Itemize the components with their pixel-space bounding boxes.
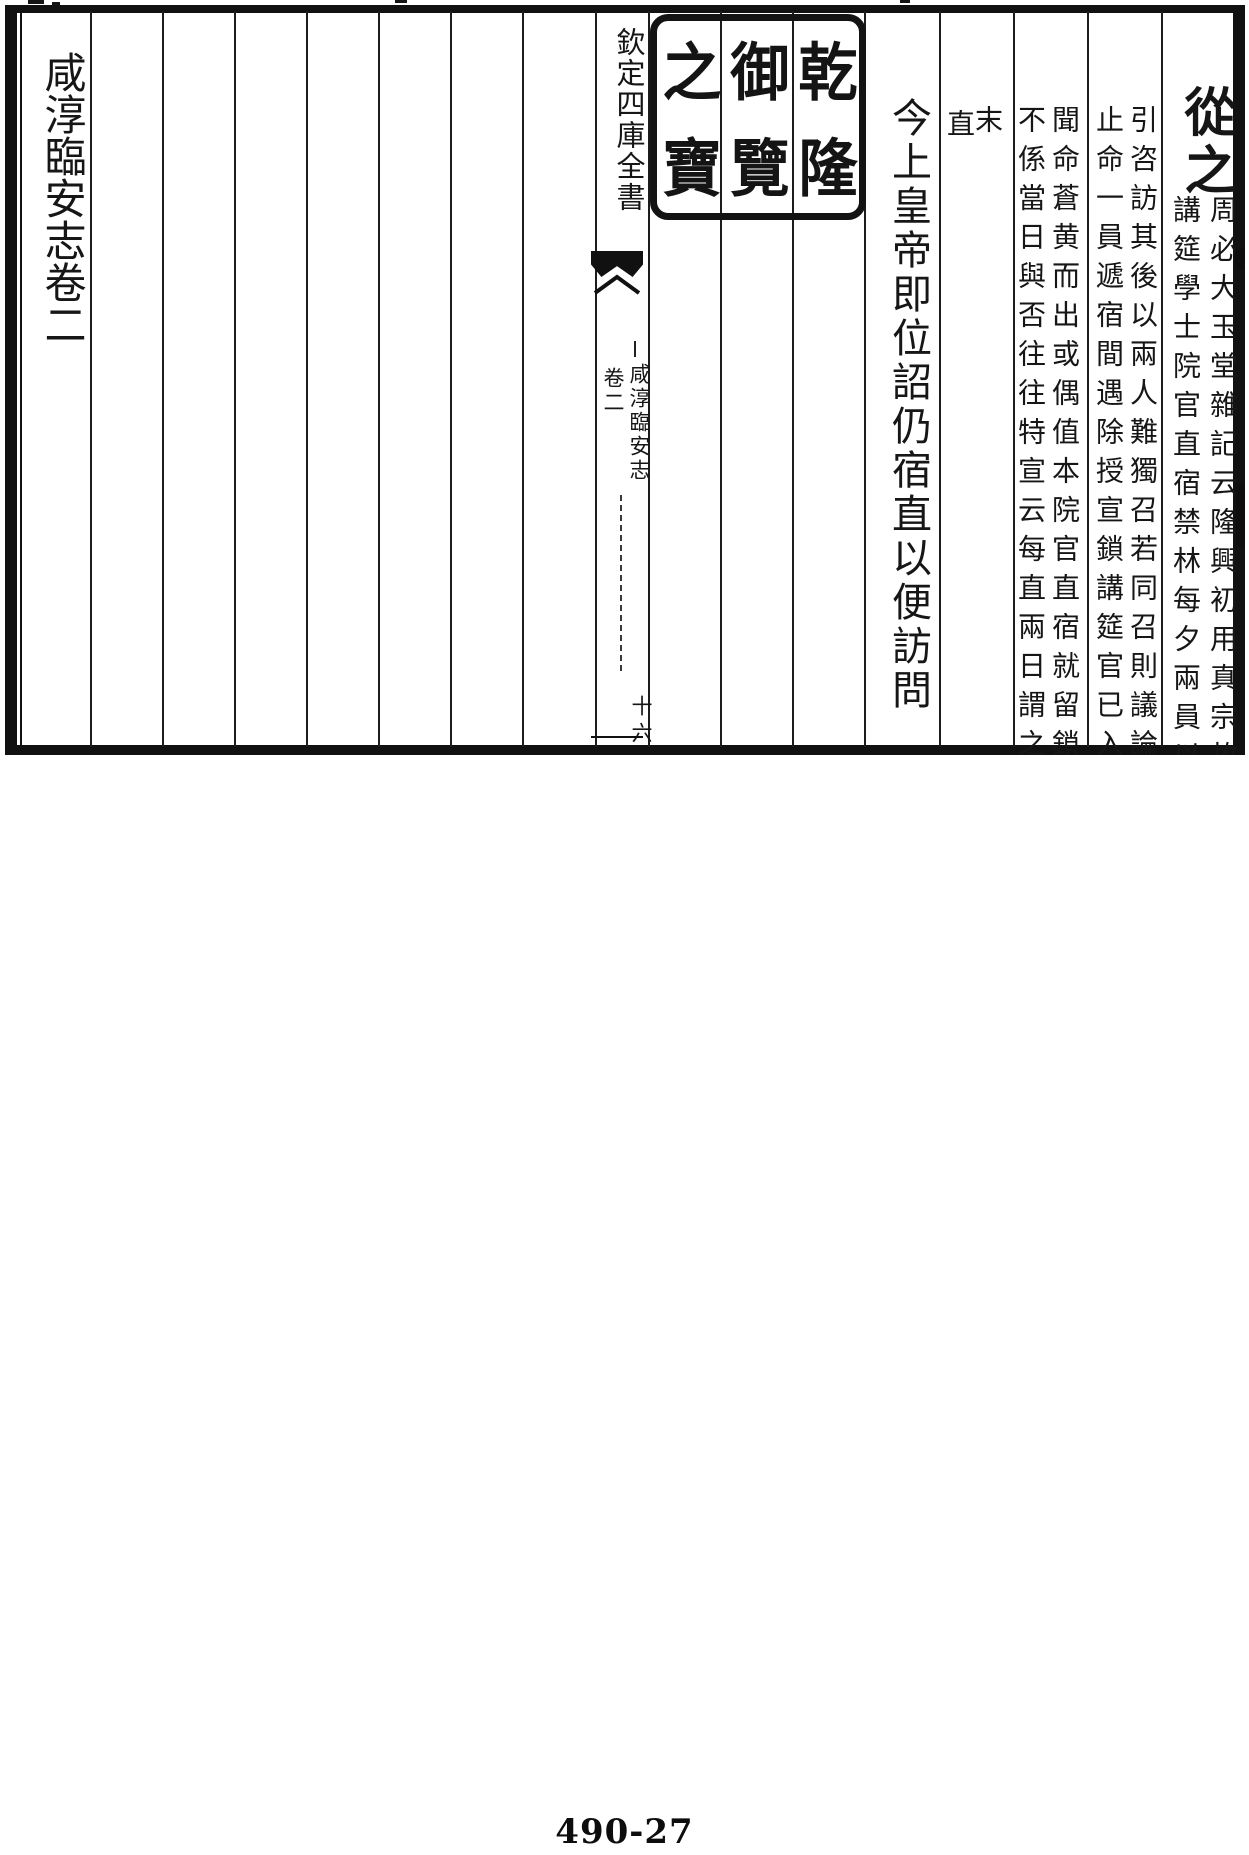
seal-char: 之 <box>660 23 723 122</box>
frame-left-inner-line <box>20 11 22 747</box>
plate-number: 490-27 <box>0 1812 1249 1852</box>
volume-title: 咸淳臨安志卷二 <box>35 51 83 345</box>
qianlong-imperial-seal: 乾 隆 御 覽 之 寶 <box>650 14 866 220</box>
main-text-proclamation: 今上皇帝即位詔仍宿直以便訪問 <box>874 97 928 713</box>
spine-chapter: 卷二 <box>599 367 623 415</box>
column-rule-line <box>450 11 452 747</box>
column-rule-line <box>378 11 380 747</box>
column-rule-line <box>522 11 524 747</box>
ink-mark <box>28 0 44 4</box>
seal-char: 御 <box>728 23 791 122</box>
fishtail-chevron <box>591 273 643 297</box>
frame-left-border <box>5 5 17 755</box>
annotation-col1-left: 講筵學士院官直宿禁林每夕兩員以 <box>1165 195 1199 755</box>
seal-char: 寶 <box>660 119 723 218</box>
book-page-frame: 咸淳臨安志卷二 欽定四庫全書 咸淳臨安志 卷二 十六 乾 隆 御 覽 之 寶 今… <box>5 5 1245 755</box>
spine-header-siku-quanshu: 欽定四庫全書 <box>595 27 643 213</box>
ink-mark <box>900 0 910 3</box>
spine-folio-number: 十六 <box>625 695 651 749</box>
column-rule-line <box>1161 11 1163 747</box>
annotation-col2-left: 止命一員遞宿間遇除授宣鎖講筵官已入 <box>1088 105 1122 755</box>
column-rule-line <box>306 11 308 747</box>
scanned-book-page: 咸淳臨安志卷二 欽定四庫全書 咸淳臨安志 卷二 十六 乾 隆 御 覽 之 寶 今… <box>0 0 1249 1855</box>
column-rule-line <box>162 11 164 747</box>
ink-blob <box>1235 248 1245 270</box>
spine-tick <box>634 341 636 357</box>
ink-mark <box>395 0 407 3</box>
annotation-col3-left: 不係當日與否往往特宣云每直兩日謂之 <box>1010 105 1044 755</box>
spine-center-fold-line <box>620 495 622 671</box>
column-rule-line <box>90 11 92 747</box>
ink-blob <box>1236 485 1245 547</box>
main-text-verdict: 從之 <box>1173 85 1231 201</box>
seal-char: 覽 <box>728 119 791 218</box>
frame-top-border <box>5 5 1245 13</box>
annotation-col3-right: 聞命蒼黄而出或偶值本院官直宿就留鎖 <box>1044 105 1078 755</box>
seal-char: 隆 <box>796 119 859 218</box>
annotation-col4-left: 直 <box>939 109 973 148</box>
annotation-col2-right: 引咨訪其後以兩人難獨召若同召則議論 <box>1122 105 1156 755</box>
seal-char: 乾 <box>796 23 859 122</box>
spine-book-title: 咸淳臨安志 <box>623 363 649 483</box>
spine-bottom-line <box>591 736 643 738</box>
column-rule-line <box>234 11 236 747</box>
annotation-col1-right: 周必大玉堂雜記云隆興初用真宗故 <box>1202 195 1236 755</box>
